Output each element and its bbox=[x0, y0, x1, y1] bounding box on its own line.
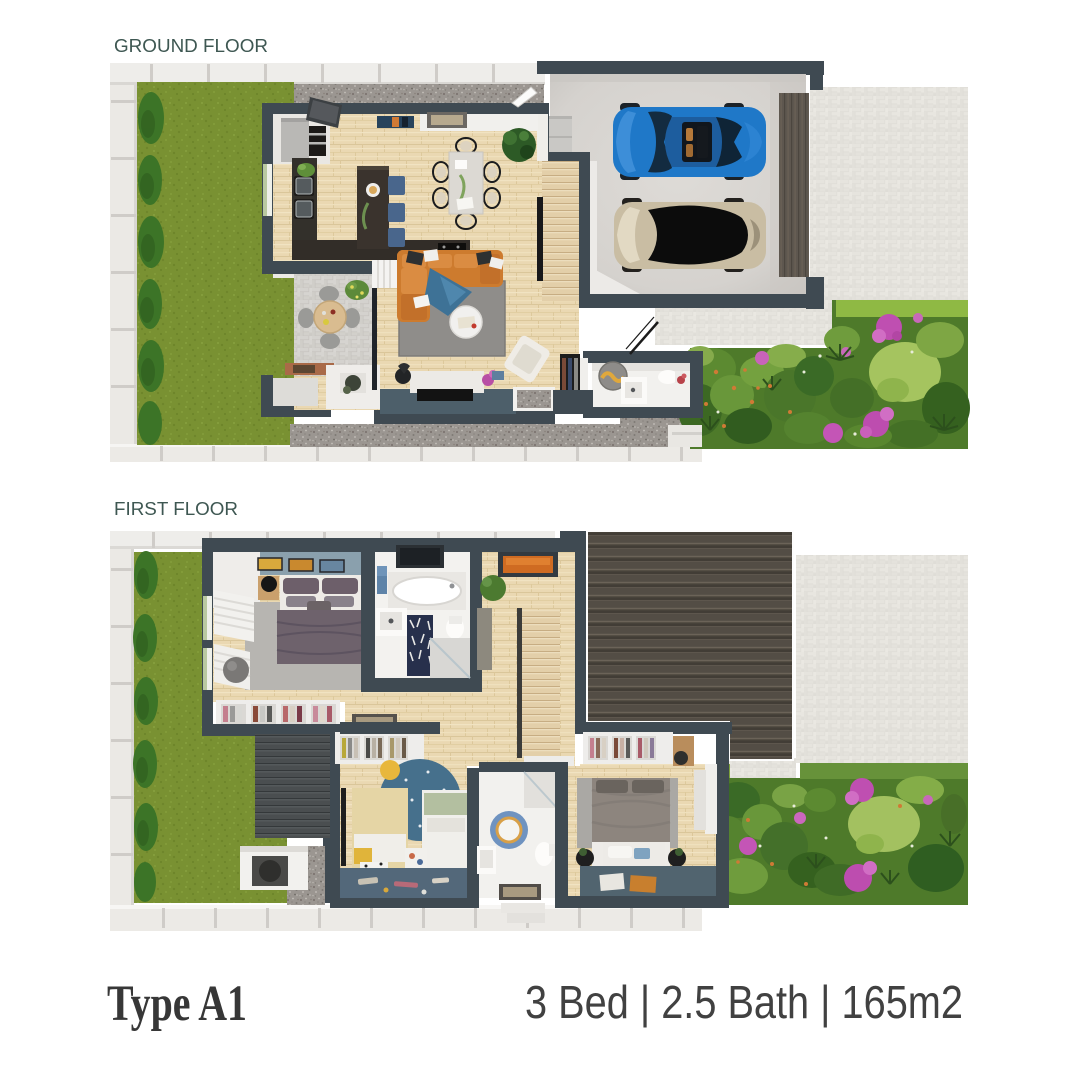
svg-text:3 Bed | 2.5 Bath | 165m2: 3 Bed | 2.5 Bath | 165m2 bbox=[525, 976, 963, 1028]
svg-text:GROUND FLOOR: GROUND FLOOR bbox=[114, 35, 268, 56]
svg-text:Type A1: Type A1 bbox=[107, 976, 247, 1032]
svg-text:FIRST FLOOR: FIRST FLOOR bbox=[114, 498, 238, 519]
